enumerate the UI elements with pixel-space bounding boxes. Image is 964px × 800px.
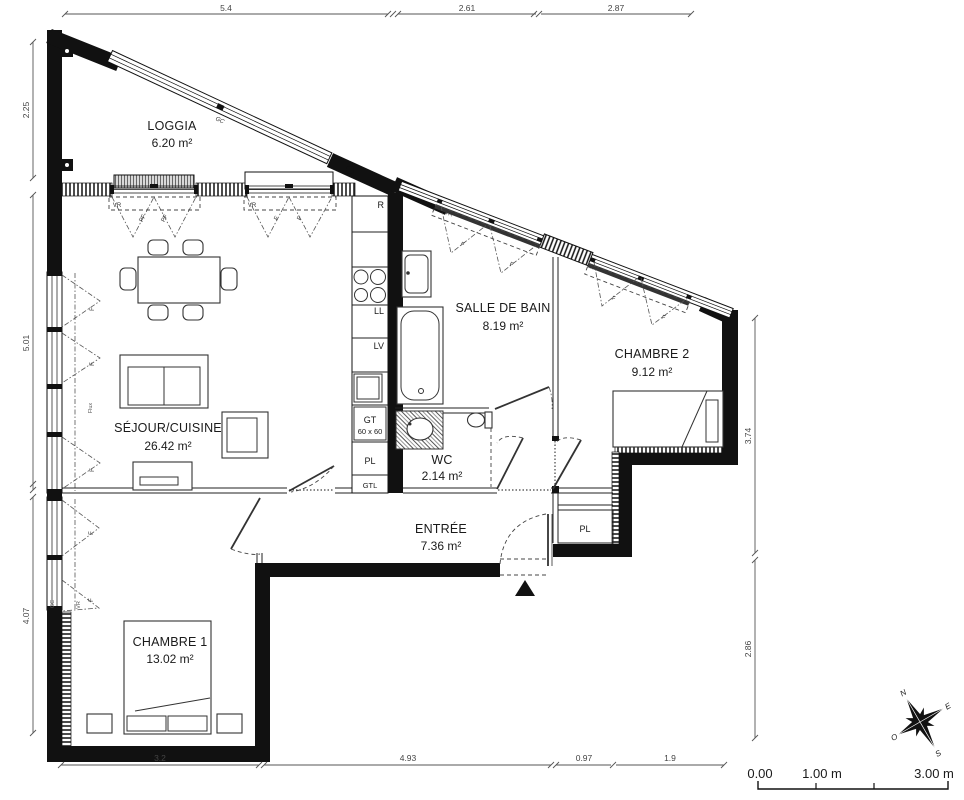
duct-label: GT xyxy=(364,415,377,425)
floor-plan-drawing: GC VR F F VR F F xyxy=(0,0,964,800)
scale-mid: 1.00 m xyxy=(802,766,842,781)
kitchen-closet-label: PL xyxy=(364,456,375,466)
wc-basin-counter xyxy=(396,411,443,449)
room-area-sejour: 26.42 m² xyxy=(144,439,191,453)
bathroom-door xyxy=(495,387,552,409)
kitchen-block: R LL LV GT 60 x 60 PL GTL xyxy=(352,196,388,493)
sejour-door xyxy=(289,466,334,492)
railing-label: GC xyxy=(50,600,56,608)
scale-end: 3.00 m xyxy=(914,766,954,781)
f-label: F xyxy=(90,362,96,366)
bathroom-fixtures xyxy=(396,251,492,449)
dim-bottom-4: 1.9 xyxy=(664,753,676,763)
dim-bottom-3: 0.97 xyxy=(576,753,593,763)
compass-west-label: O xyxy=(889,732,899,743)
compass-cardinal-points xyxy=(885,685,959,760)
dim-top-1: 5.4 xyxy=(220,3,232,13)
bedroom1-door xyxy=(231,498,260,554)
scale-start: 0.00 xyxy=(747,766,772,781)
f-label: F xyxy=(274,215,281,221)
washbasin xyxy=(402,251,431,297)
compass-rose: N E S O xyxy=(872,671,964,774)
toilet xyxy=(468,412,493,428)
f-label: F xyxy=(661,315,667,322)
sejour-furniture xyxy=(120,240,268,490)
dim-bottom-2: 4.93 xyxy=(400,753,417,763)
compass-north-label: N xyxy=(898,688,908,699)
pf-label: PF xyxy=(161,213,170,223)
f-label: F xyxy=(297,215,304,221)
room-area-chambre1: 13.02 m² xyxy=(146,652,193,666)
dishwasher-label: LV xyxy=(374,341,384,351)
nightstand xyxy=(217,714,242,733)
washer-label: LL xyxy=(374,306,384,316)
f-label: F xyxy=(460,242,466,249)
dimensions-top: 5.4 2.61 2.87 xyxy=(62,3,694,17)
column xyxy=(346,166,354,174)
dimensions-left: 2.25 5.01 4.07 xyxy=(21,39,36,736)
room-name-loggia: LOGGIA xyxy=(147,119,197,133)
diagonal-window-band: VR F F VR F F xyxy=(394,179,734,328)
bedroom2-furniture xyxy=(613,391,723,447)
dim-top-2: 2.61 xyxy=(459,3,476,13)
room-name-chambre2: CHAMBRE 2 xyxy=(615,347,690,361)
f-label: F xyxy=(90,468,96,472)
sejour-left-window: F F F Flux xyxy=(47,272,100,493)
f-label: F xyxy=(90,307,96,311)
vr-label: VR xyxy=(113,203,122,209)
duct-size-label: 60 x 60 xyxy=(358,427,383,436)
closet-pl: PL xyxy=(558,505,613,543)
f-label: F xyxy=(89,598,95,602)
vr-label: VR xyxy=(248,203,257,209)
railing-label: GC xyxy=(214,116,225,126)
room-name-sdb: SALLE DE BAIN xyxy=(455,301,550,315)
floor-plan-page: GC VR F F VR F F xyxy=(0,0,964,800)
tv-console xyxy=(133,462,192,490)
armchair xyxy=(222,412,268,458)
nightstand xyxy=(87,714,112,733)
room-name-wc: WC xyxy=(431,453,452,467)
bay-1: VR PF PF xyxy=(109,184,200,237)
f-label: F xyxy=(611,296,617,303)
room-area-entree: 7.36 m² xyxy=(421,539,462,553)
entrance-door xyxy=(500,514,552,596)
dim-top-3: 2.87 xyxy=(608,3,625,13)
gtl-label: GTL xyxy=(363,481,378,490)
dim-right-2: 2.86 xyxy=(743,640,753,657)
scale-bar: 0.00 1.00 m 3.00 m xyxy=(747,766,954,789)
dim-left-3: 4.07 xyxy=(21,607,31,624)
compass-east-label: E xyxy=(943,701,953,712)
bathtub xyxy=(397,307,443,404)
dimensions-bottom: 3.2 4.93 0.97 1.9 xyxy=(58,753,727,768)
room-area-sdb: 8.19 m² xyxy=(483,319,524,333)
f-label: F xyxy=(89,531,95,535)
bay-2: VR F F xyxy=(244,184,336,237)
pf-label: PF xyxy=(139,213,148,223)
wc-corridor-door xyxy=(497,436,523,489)
room-name-entree: ENTRÉE xyxy=(415,521,467,536)
fridge-label: R xyxy=(378,200,385,210)
dimensions-right: 3.74 2.86 xyxy=(743,315,758,741)
dining-table xyxy=(138,257,220,303)
room-area-loggia: 6.20 m² xyxy=(152,136,193,150)
entrance-arrow xyxy=(515,580,535,596)
room-area-wc: 2.14 m² xyxy=(422,469,463,483)
f-label: F xyxy=(509,262,515,269)
left-facade-windows: F F F Flux F F GC VR xyxy=(47,272,100,611)
dim-right-1: 3.74 xyxy=(743,427,753,444)
room-name-chambre1: CHAMBRE 1 xyxy=(133,635,208,649)
room-area-chambre2: 9.12 m² xyxy=(632,365,673,379)
closet-label: PL xyxy=(579,524,590,534)
dim-bottom-1: 3.2 xyxy=(154,753,166,763)
bedroom2-door xyxy=(553,438,581,489)
sofa xyxy=(120,355,208,408)
sejour-top-windows: VR PF PF VR F F xyxy=(109,172,336,237)
dim-left-2: 5.01 xyxy=(21,334,31,351)
flux-label: Flux xyxy=(88,403,94,414)
vr-label: VR xyxy=(76,601,82,609)
dim-left-1: 2.25 xyxy=(21,101,31,118)
room-name-sejour: SÉJOUR/CUISINE xyxy=(114,420,222,435)
compass-south-label: S xyxy=(934,748,944,759)
bedroom1-left-window: F F GC VR xyxy=(47,497,99,611)
